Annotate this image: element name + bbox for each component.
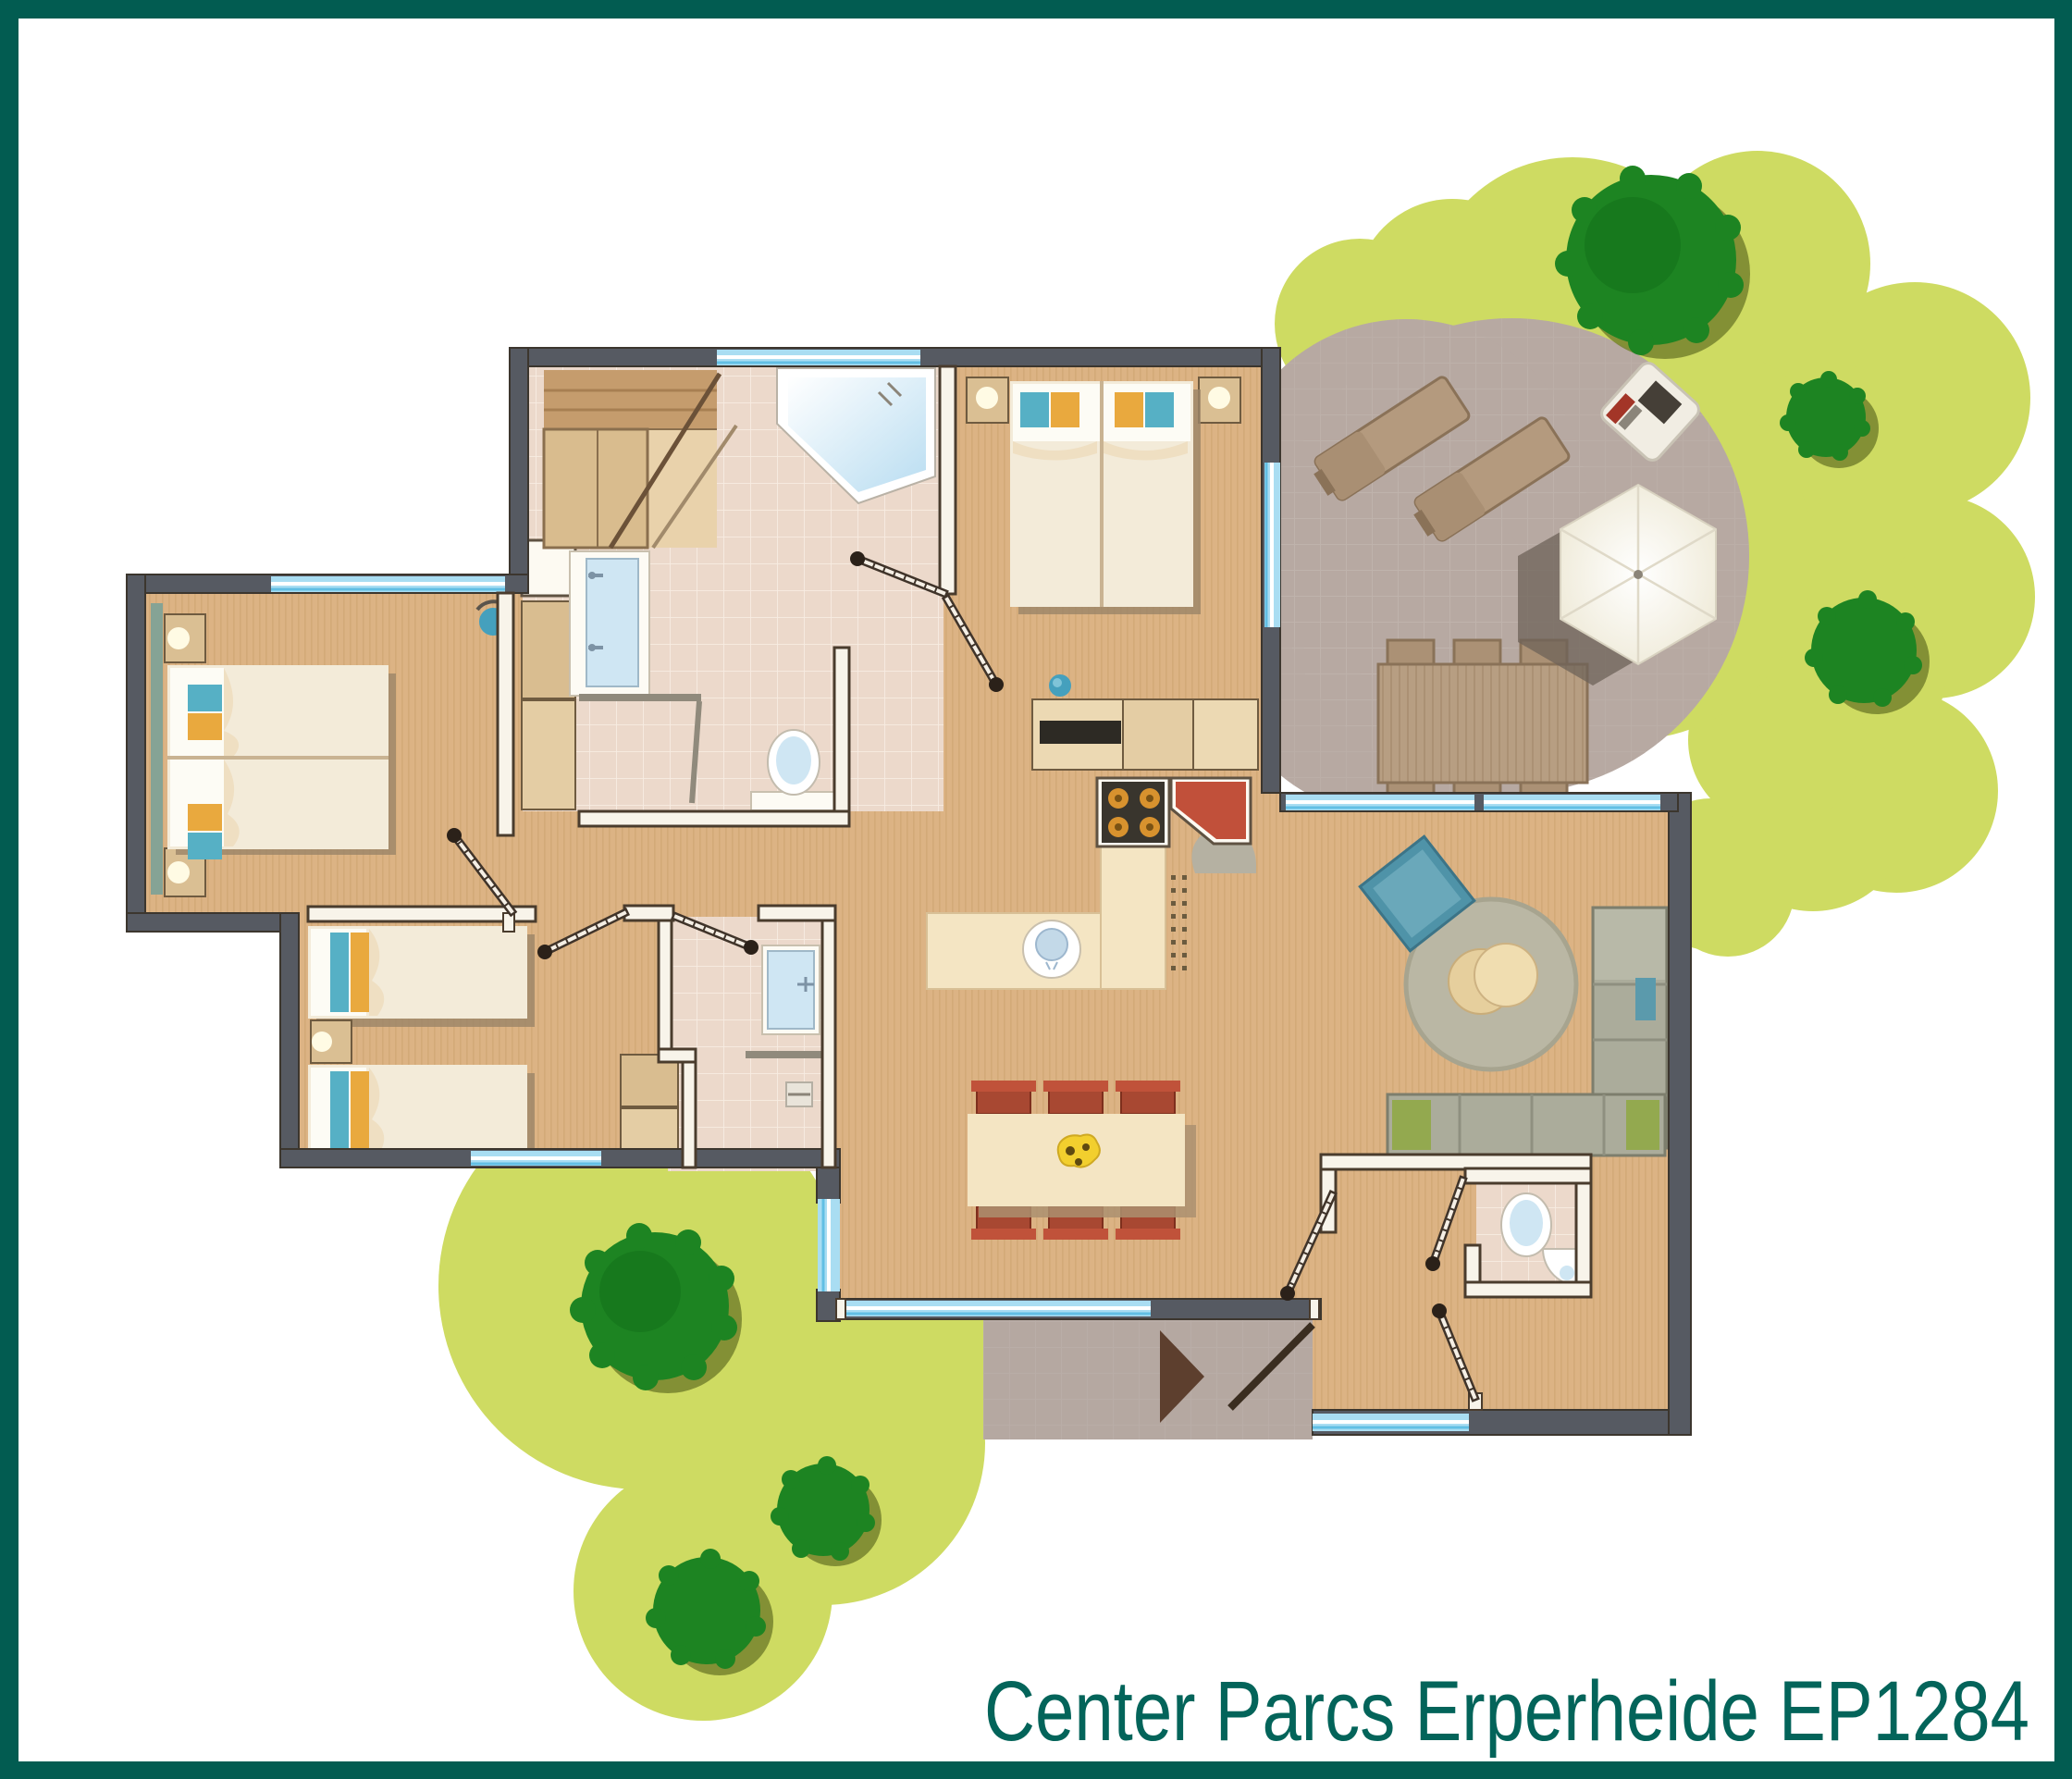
svg-text:Center Parcs Erperheide EP1284: Center Parcs Erperheide EP1284 bbox=[984, 1664, 2029, 1759]
